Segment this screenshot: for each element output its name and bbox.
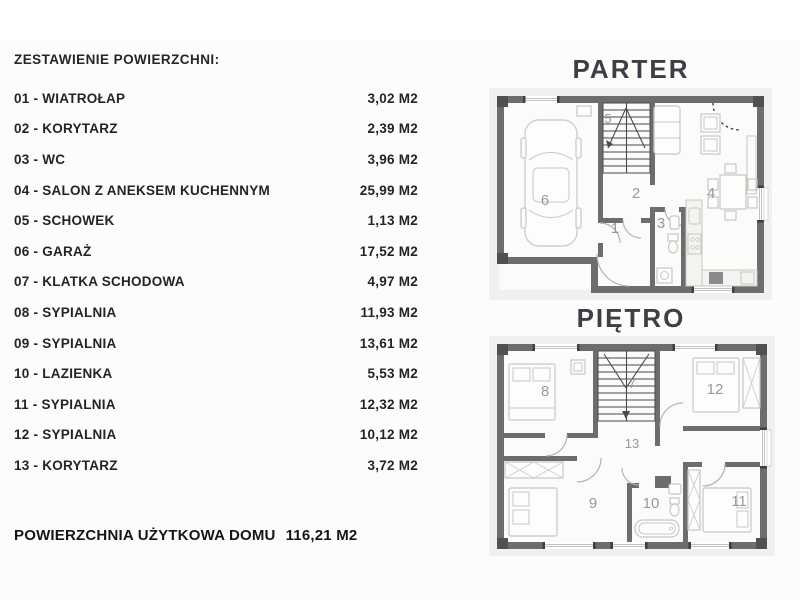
area-row: 13 - KORYTARZ3,72 M2 [14,450,418,481]
car-icon [521,120,581,246]
total-label: POWIERZCHNIA UŻYTKOWA DOMU [14,527,276,544]
area-row: 10 - LAZIENKA5,53 M2 [14,358,418,389]
room-area: 25,99 M2 [360,183,418,198]
room-number-bedroom-sw: 9 [589,495,597,512]
garage-box [577,106,591,116]
area-row: 03 - WC3,96 M2 [14,144,418,175]
room-area: 1,13 M2 [367,213,418,228]
room-label: 03 - WC [14,152,65,167]
parter-title: PARTER [488,54,774,85]
room-number-garage: 6 [541,192,549,209]
room-label: 01 - WIATROŁAP [14,91,125,106]
bed-room9 [509,488,557,536]
total-usable-area: POWIERZCHNIA UŻYTKOWA DOMU116,21 M2 [14,527,357,544]
pietro-title: PIĘTRO [488,303,774,334]
area-row: 11 - SYPIALNIA12,32 M2 [14,389,418,420]
room-label: 09 - SYPIALNIA [14,336,117,351]
area-row: 07 - KLATKA SCHODOWA4,97 M2 [14,267,418,298]
room-area: 17,52 M2 [360,244,418,259]
area-row: 01 - WIATROŁAP3,02 M2 [14,83,418,114]
room-number-wc: 3 [657,215,665,232]
bed-room12 [693,358,760,412]
room-area: 13,61 M2 [360,336,418,351]
area-summary-title: ZESTAWIENIE POWIERZCHNI: [14,52,418,67]
room-label: 12 - SYPIALNIA [14,427,117,442]
room-number-stairs: 7 [628,376,635,391]
room-area: 11,93 M2 [360,305,418,320]
room-area: 10,12 M2 [360,427,418,442]
total-value: 116,21 M2 [286,527,358,544]
room-number-entry: 1 [611,220,619,237]
room-area: 4,97 M2 [367,274,418,289]
area-row: 06 - GARAŻ17,52 M2 [14,236,418,267]
wardrobe-room9 [505,462,563,478]
room-label: 07 - KLATKA SCHODOWA [14,274,185,289]
room-label: 05 - SCHOWEK [14,213,115,228]
area-row: 08 - SYPIALNIA11,93 M2 [14,297,418,328]
room-area: 2,39 M2 [367,121,418,136]
sofa [654,106,680,154]
room-number-living: 4 [707,185,715,202]
area-rows: 01 - WIATROŁAP3,02 M2 02 - KORYTARZ2,39 … [14,83,418,481]
room-area: 12,32 M2 [360,397,418,412]
room-label: 13 - KORYTARZ [14,458,118,473]
area-row: 02 - KORYTARZ2,39 M2 [14,114,418,145]
area-row: 12 - SYPIALNIA10,12 M2 [14,420,418,451]
room-number-bathroom: 10 [643,495,660,512]
wardrobe-room12 [743,358,760,408]
parter-floorplan: 6 5 2 1 3 4 [489,88,772,300]
room-area: 3,02 M2 [367,91,418,106]
room-label: 02 - KORYTARZ [14,121,118,136]
wardrobe-room11 [688,470,700,530]
area-summary: ZESTAWIENIE POWIERZCHNI: 01 - WIATROŁAP3… [14,52,418,481]
room-area: 3,72 M2 [367,458,418,473]
room-label: 04 - SALON Z ANEKSEM KUCHENNYM [14,183,270,198]
room-area: 3,96 M2 [367,152,418,167]
area-row: 09 - SYPIALNIA13,61 M2 [14,328,418,359]
room-label: 10 - LAZIENKA [14,366,113,381]
room-label: 06 - GARAŻ [14,244,92,259]
room-number-bedroom-nw: 8 [541,383,549,400]
room-label: 08 - SYPIALNIA [14,305,117,320]
room-label: 11 - SYPIALNIA [14,397,116,412]
room-number-bedroom-se: 11 [731,493,747,510]
room-number-bedroom-ne: 12 [707,381,724,398]
room-number-corridor: 13 [625,436,639,451]
area-row: 04 - SALON Z ANEKSEM KUCHENNYM25,99 M2 [14,175,418,206]
room-number-storage: 5 [604,111,611,126]
pietro-floorplan: 8 7 12 13 9 10 11 [489,336,775,556]
room-area: 5,53 M2 [367,366,418,381]
room-number-hall: 2 [632,185,640,202]
area-row: 05 - SCHOWEK1,13 M2 [14,205,418,236]
